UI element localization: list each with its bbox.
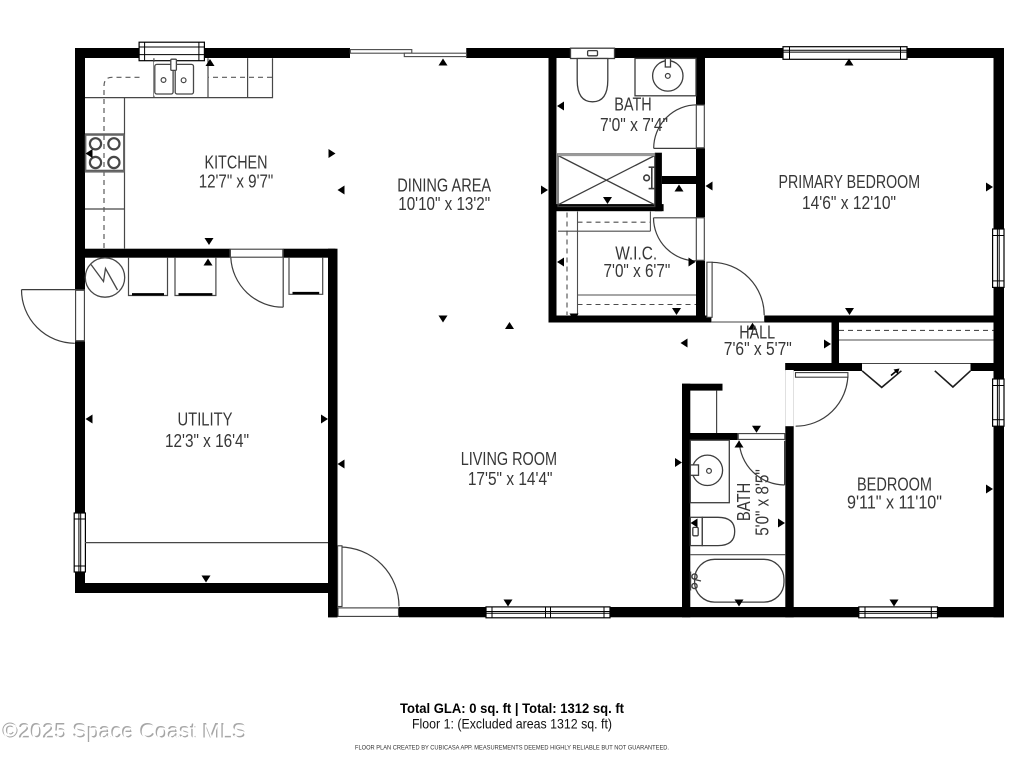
svg-text:KITCHEN: KITCHEN: [205, 152, 268, 172]
svg-text:LIVING ROOM: LIVING ROOM: [461, 449, 557, 469]
svg-text:12'7" x 9'7": 12'7" x 9'7": [199, 172, 274, 192]
svg-text:BEDROOM: BEDROOM: [857, 475, 932, 495]
svg-text:DINING AREA: DINING AREA: [397, 175, 491, 195]
svg-text:7'6" x 5'7": 7'6" x 5'7": [724, 339, 792, 359]
svg-text:5'0" x 8'5": 5'0" x 8'5": [753, 469, 773, 536]
svg-text:14'6" x 12'10": 14'6" x 12'10": [802, 193, 896, 213]
svg-text:9'11" x 11'10": 9'11" x 11'10": [847, 493, 942, 513]
svg-text:BATH: BATH: [734, 483, 754, 521]
svg-text:PRIMARY BEDROOM: PRIMARY BEDROOM: [779, 172, 921, 192]
svg-text:©2025 Space Coast MLS: ©2025 Space Coast MLS: [3, 719, 247, 744]
svg-text:BATH: BATH: [614, 95, 652, 115]
svg-text:Floor 1: (Excluded areas 1312: Floor 1: (Excluded areas 1312 sq. ft): [412, 716, 612, 732]
svg-text:7'0" x 7'4": 7'0" x 7'4": [600, 115, 668, 135]
svg-text:10'10" x 13'2": 10'10" x 13'2": [398, 194, 490, 214]
svg-text:Total GLA: 0 sq. ft | Total: 1: Total GLA: 0 sq. ft | Total: 1312 sq. ft: [400, 700, 624, 716]
svg-text:12'3" x 16'4": 12'3" x 16'4": [165, 431, 249, 451]
svg-text:17'5" x 14'4": 17'5" x 14'4": [468, 469, 553, 489]
svg-text:7'0" x 6'7": 7'0" x 6'7": [604, 261, 671, 281]
svg-text:FLOOR PLAN CREATED BY CUBICASA: FLOOR PLAN CREATED BY CUBICASA APP. MEAS…: [355, 745, 669, 752]
svg-text:UTILITY: UTILITY: [178, 410, 233, 430]
